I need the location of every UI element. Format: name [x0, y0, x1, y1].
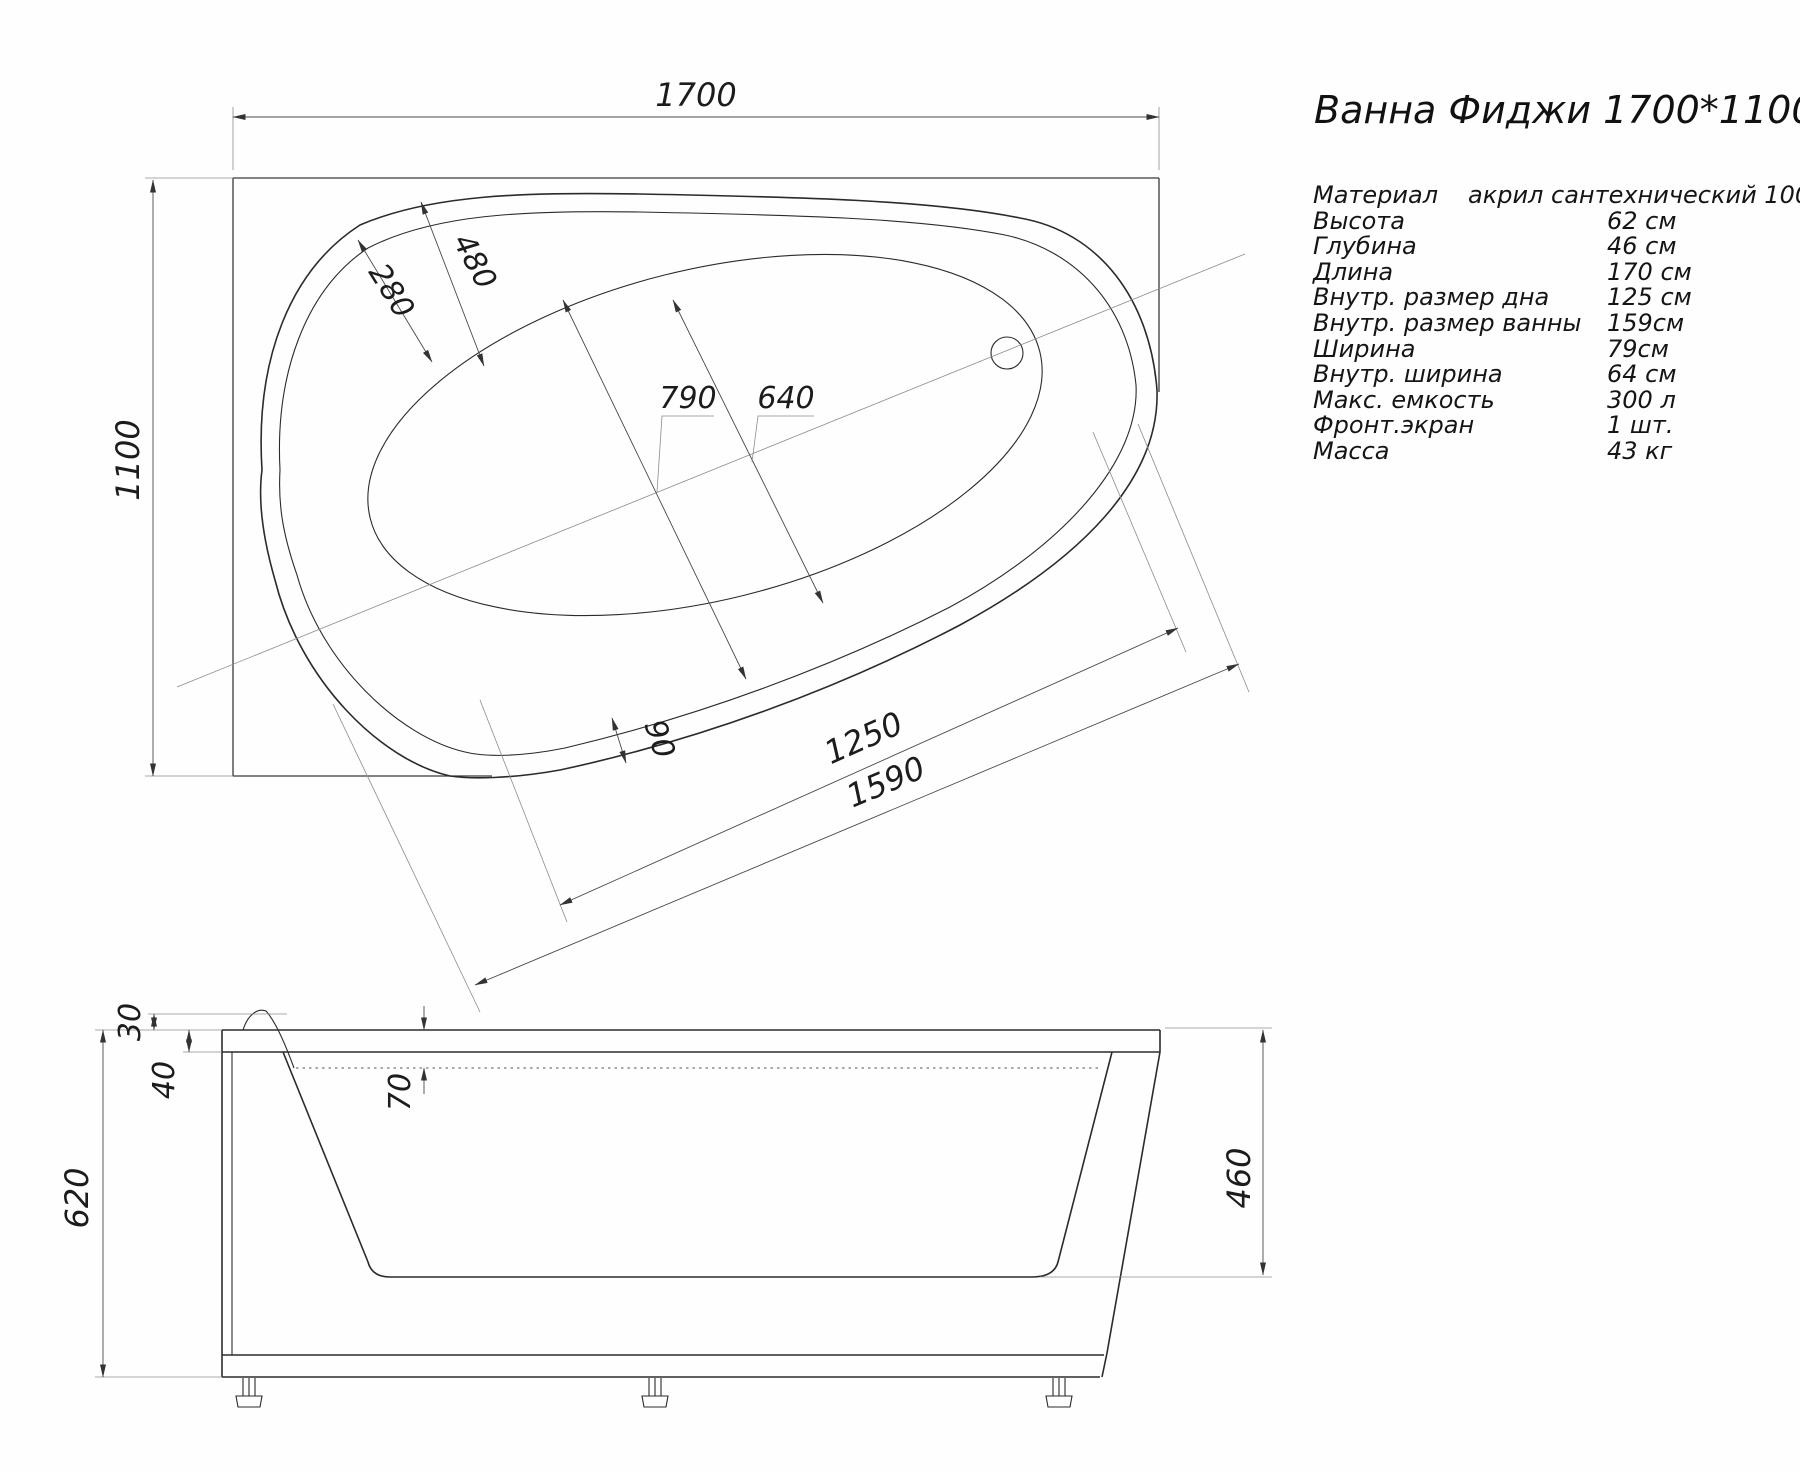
tub-bowl [330, 191, 1079, 678]
apron [222, 1052, 1160, 1377]
dim-30: 30 [113, 1003, 287, 1041]
spec-row-front-panel: Фронт.экран 1 шт. [1313, 413, 1793, 439]
spec-value: 125 см [1607, 285, 1692, 311]
dim-460-label: 460 [1220, 1147, 1258, 1208]
dim-460: 460 [1040, 1028, 1272, 1277]
dim-620-label: 620 [58, 1167, 96, 1228]
dim-1590: 1590 [333, 424, 1249, 1012]
rim-band [222, 1030, 1160, 1377]
side-view: 620 30 40 70 460 [58, 1003, 1272, 1407]
dim-480: 480 [421, 202, 503, 366]
spec-label: Материал [1313, 183, 1438, 209]
dim-30-label: 30 [113, 1003, 148, 1041]
spec-label: Макс. емкость [1313, 388, 1495, 414]
dim-640-label: 640 [757, 381, 814, 416]
dim-790-label: 790 [659, 381, 716, 416]
dim-1250: 1250 [480, 432, 1186, 922]
spec-label: Внутр. ширина [1313, 362, 1503, 388]
dim-480-label: 480 [445, 228, 503, 295]
drawing-title: Ванна Фиджи 1700*1100 [1314, 88, 1784, 132]
dim-1700: 1700 [233, 76, 1159, 170]
spec-value: 1 шт. [1607, 413, 1673, 439]
spec-label: Глубина [1313, 234, 1417, 260]
spec-row-length: Длина 170 см [1313, 260, 1793, 286]
spec-row-width: Ширина 79см [1313, 337, 1793, 363]
spec-value: 159см [1607, 311, 1684, 337]
spec-value: 43 кг [1607, 439, 1672, 465]
spec-row-material: Материал акрил сантехнический 100% [1313, 183, 1793, 209]
spec-row-height: Высота 62 см [1313, 209, 1793, 235]
spec-value: 46 см [1607, 234, 1676, 260]
foot-left [236, 1378, 262, 1407]
spec-label: Ширина [1313, 337, 1416, 363]
spec-label: Масса [1313, 439, 1390, 465]
dim-790: 790 [563, 300, 746, 679]
dim-620: 620 [58, 1030, 222, 1377]
spec-value: 79см [1607, 337, 1669, 363]
dim-90-label: 90 [636, 715, 681, 762]
spec-row-mass: Масса 43 кг [1313, 439, 1793, 465]
spec-row-inner-size: Внутр. размер ванны 159см [1313, 311, 1793, 337]
dim-280-label: 280 [361, 257, 421, 324]
top-view: 1700 1100 280 480 790 640 [109, 76, 1249, 1012]
spec-row-bottom-size: Внутр. размер дна 125 см [1313, 285, 1793, 311]
dim-40: 40 [147, 1030, 222, 1099]
dim-1700-label: 1700 [655, 76, 736, 114]
dim-70: 70 [383, 1006, 424, 1111]
spec-table: Материал акрил сантехнический 100% Высот… [1313, 183, 1793, 465]
spec-value: акрил сантехнический 100% [1468, 183, 1800, 209]
spec-label: Внутр. размер ванны [1313, 311, 1581, 337]
construction-line [177, 254, 1245, 687]
dim-1100-label: 1100 [109, 419, 147, 500]
spec-row-depth: Глубина 46 см [1313, 234, 1793, 260]
foot-middle [642, 1378, 668, 1407]
spec-value: 64 см [1607, 362, 1676, 388]
spec-row-inner-width: Внутр. ширина 64 см [1313, 362, 1793, 388]
drain-hole [991, 337, 1023, 369]
spec-label: Длина [1313, 260, 1393, 286]
dim-640: 640 [673, 300, 823, 603]
foot-right [1046, 1378, 1072, 1407]
bathtub-technical-drawing: 1700 1100 280 480 790 640 [0, 0, 1800, 1472]
spec-label: Внутр. размер дна [1313, 285, 1549, 311]
dim-40-label: 40 [147, 1061, 182, 1099]
spec-value: 300 л [1607, 388, 1676, 414]
dim-1100: 1100 [109, 178, 233, 776]
spec-label: Фронт.экран [1313, 413, 1474, 439]
spec-row-capacity: Макс. емкость 300 л [1313, 388, 1793, 414]
spec-value: 62 см [1607, 209, 1676, 235]
spec-label: Высота [1313, 209, 1405, 235]
dim-70-label: 70 [383, 1073, 418, 1111]
feet [236, 1378, 1072, 1407]
dim-280: 280 [358, 240, 432, 362]
spec-value: 170 см [1607, 260, 1692, 286]
